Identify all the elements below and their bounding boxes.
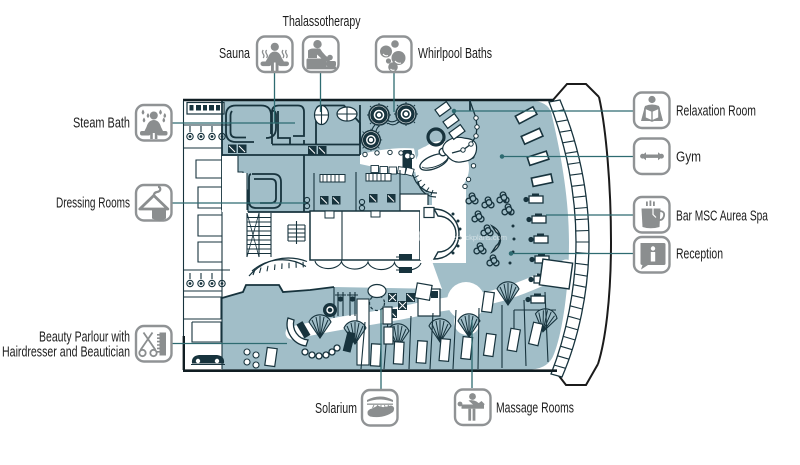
svg-text:Reception: Reception [676,246,723,263]
svg-text:Gym: Gym [676,149,701,166]
svg-text:Bar MSC Aurea Spa: Bar MSC Aurea Spa [676,208,768,225]
svg-text:Hairdresser and Beautician: Hairdresser and Beautician [2,344,130,361]
svg-text:Steam Bath: Steam Bath [73,115,130,132]
svg-text:Massage Rooms: Massage Rooms [496,400,574,417]
svg-text:Dressing Rooms: Dressing Rooms [56,195,130,212]
svg-text:Sauna: Sauna [219,45,250,62]
svg-text:Thalassotherapy: Thalassotherapy [283,13,361,30]
svg-text:Whirlpool Baths: Whirlpool Baths [418,45,492,62]
svg-text:cruisedeckplans.com: cruisedeckplans.com [437,233,507,242]
svg-text:Solarium: Solarium [315,400,357,417]
svg-text:Relaxation Room: Relaxation Room [676,103,756,120]
